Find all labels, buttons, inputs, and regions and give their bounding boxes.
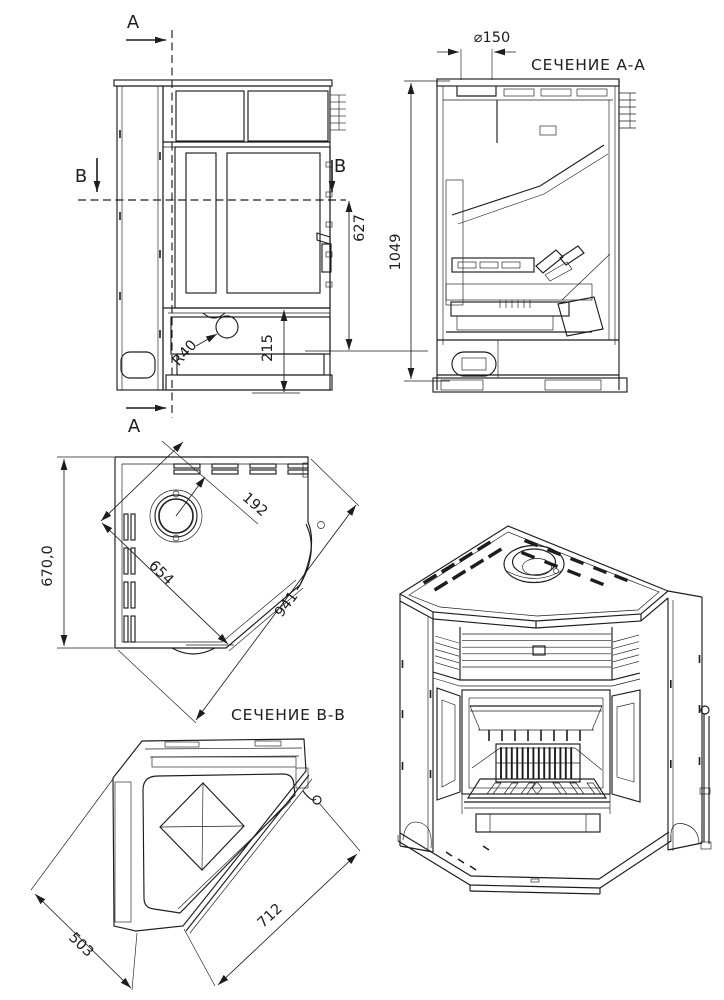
front-elevation-view: А А В В 627 215 R40 — [75, 12, 428, 437]
left-side-panel — [117, 86, 163, 390]
left-glass — [186, 153, 216, 293]
aa-base — [433, 340, 627, 392]
section-aa-title: СЕЧЕНИЕ А-А — [531, 56, 646, 74]
plan-side-slots — [124, 514, 135, 642]
iso-bottom-band — [462, 794, 610, 832]
section-aa-view: ⌀150 1049 СЕЧЕНИЕ А-А — [388, 30, 646, 392]
plan-ash-lip — [172, 648, 215, 654]
bb-outline — [113, 739, 306, 931]
section-bb-title: СЕЧЕНИЕ В-В — [231, 706, 346, 724]
aa-side-fins — [619, 93, 636, 128]
dim-215: 215 — [260, 334, 276, 362]
section-b-label-right: В — [334, 156, 346, 177]
side-louver-fins — [330, 95, 346, 130]
aa-pellet-chute — [558, 254, 610, 336]
section-b-label-left: В — [75, 166, 87, 187]
bb-dimensions: 503 712 — [31, 779, 360, 990]
plan-door-arc — [297, 524, 311, 590]
front-glass — [227, 153, 320, 293]
hearth — [163, 308, 330, 338]
dim-503: 503 — [65, 930, 96, 961]
aa-insulation-left — [446, 180, 463, 305]
aa-grate-comb — [500, 300, 530, 308]
dim-r40: R40 — [170, 337, 201, 369]
dim-654: 654 — [145, 558, 176, 589]
aa-top-plate — [437, 79, 619, 86]
bb-insulation-left — [115, 782, 131, 922]
door-handle — [317, 233, 331, 272]
aa-ash-drawer — [446, 302, 592, 332]
top-plate — [114, 80, 332, 86]
section-a-label-top: А — [127, 12, 140, 33]
iso-top-vent-slots — [424, 540, 628, 590]
bb-grate — [160, 783, 244, 870]
bb-firebox-chamber — [143, 774, 295, 913]
technical-drawing-canvas: А А В В 627 215 R40 — [0, 0, 724, 1000]
bb-front-door-panel — [186, 775, 312, 933]
dim-192: 192 — [239, 490, 270, 520]
front-dimensions: 627 215 R40 — [170, 201, 428, 393]
dim-1049: 1049 — [388, 234, 404, 271]
air-inlet-circle — [216, 316, 238, 338]
aa-walls — [437, 79, 619, 390]
isometric-view — [398, 526, 711, 894]
bb-top-band — [145, 741, 302, 767]
section-a-label-bottom: А — [128, 416, 141, 437]
iso-louver-band — [433, 627, 640, 686]
aa-burner-logs — [452, 246, 584, 281]
section-arrows — [97, 40, 332, 408]
top-grille — [176, 91, 328, 141]
drawing-sheet: А А В В 627 215 R40 — [0, 0, 724, 1000]
plan-view: 670,0 192 654 941 — [40, 441, 359, 723]
dim-flue-diameter: ⌀150 — [474, 30, 510, 46]
aa-smoke-chamber — [452, 100, 608, 224]
iso-firebox-interior — [464, 706, 610, 808]
iso-left-column — [400, 601, 433, 852]
dim-941: 941 — [272, 589, 301, 621]
aa-handle-oval — [452, 352, 496, 376]
door-frame — [175, 147, 330, 308]
iso-right-column — [668, 591, 702, 851]
plan-hinge-circle — [318, 522, 325, 529]
section-bb-view: СЕЧЕНИЕ В-В — [31, 706, 360, 990]
aa-dimensions: ⌀150 1049 — [388, 30, 516, 381]
iso-doors — [437, 688, 640, 802]
dim-712: 712 — [255, 901, 286, 932]
aa-top-grille — [504, 89, 607, 96]
aa-flue-collar — [457, 86, 496, 96]
dim-627: 627 — [352, 214, 368, 242]
plan-dimensions: 670,0 192 654 941 — [40, 441, 359, 723]
iso-base-plinth — [398, 832, 671, 894]
iso-top-slab — [400, 526, 668, 628]
left-foot — [121, 352, 155, 378]
dim-670: 670,0 — [40, 545, 56, 587]
